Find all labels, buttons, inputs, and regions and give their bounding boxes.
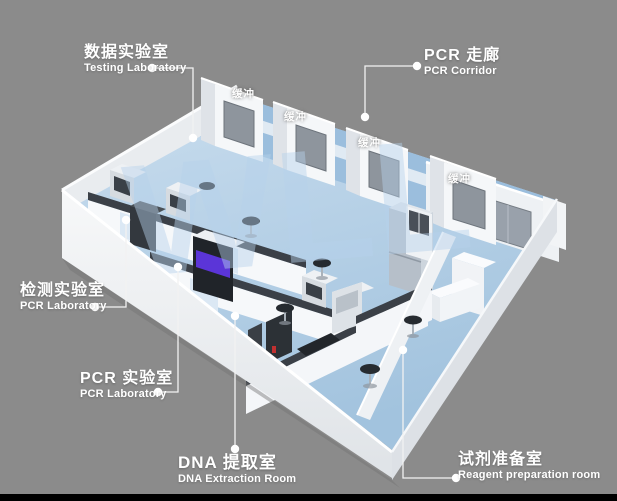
callout-reagent-prep-en: Reagent preparation room xyxy=(458,469,600,483)
wall-label-buffer-4: 缓冲 xyxy=(448,171,471,186)
callout-pcr-corridor-en: PCR Corridor xyxy=(424,65,500,79)
lab-3d-overview: WLL 数据实验室 Testing Laboratory PCR 走廊 PCR … xyxy=(0,0,617,501)
callout-reagent-prep-zh: 试剂准备室 xyxy=(458,451,600,469)
callout-inspection-lab-zh: 检测实验室 xyxy=(20,282,107,300)
callout-pcr-lab-en: PCR Laboratory xyxy=(80,388,173,402)
callout-pcr-lab-zh: PCR 实验室 xyxy=(80,370,173,388)
callout-dna-extraction-zh: DNA 提取室 xyxy=(178,453,296,473)
callout-reagent-prep: 试剂准备室 Reagent preparation room xyxy=(458,451,600,483)
callout-dna-extraction: DNA 提取室 DNA Extraction Room xyxy=(178,453,296,486)
callout-testing-lab-zh: 数据实验室 xyxy=(84,44,186,62)
wall-label-buffer-2: 缓冲 xyxy=(284,109,307,124)
callout-testing-lab: 数据实验室 Testing Laboratory xyxy=(84,44,186,76)
callout-inspection-lab: 检测实验室 PCR Laboratory xyxy=(20,282,107,314)
callout-pcr-lab: PCR 实验室 PCR Laboratory xyxy=(80,370,173,402)
wall-label-buffer-3: 缓冲 xyxy=(358,135,381,150)
callout-inspection-lab-en: PCR Laboratory xyxy=(20,300,107,314)
callout-dna-extraction-en: DNA Extraction Room xyxy=(178,473,296,487)
callout-pcr-corridor: PCR 走廊 PCR Corridor xyxy=(424,47,500,79)
bottom-bar xyxy=(0,494,617,501)
callout-pcr-corridor-zh: PCR 走廊 xyxy=(424,47,500,65)
callout-testing-lab-en: Testing Laboratory xyxy=(84,62,186,76)
wall-label-buffer-1: 缓冲 xyxy=(232,86,255,101)
